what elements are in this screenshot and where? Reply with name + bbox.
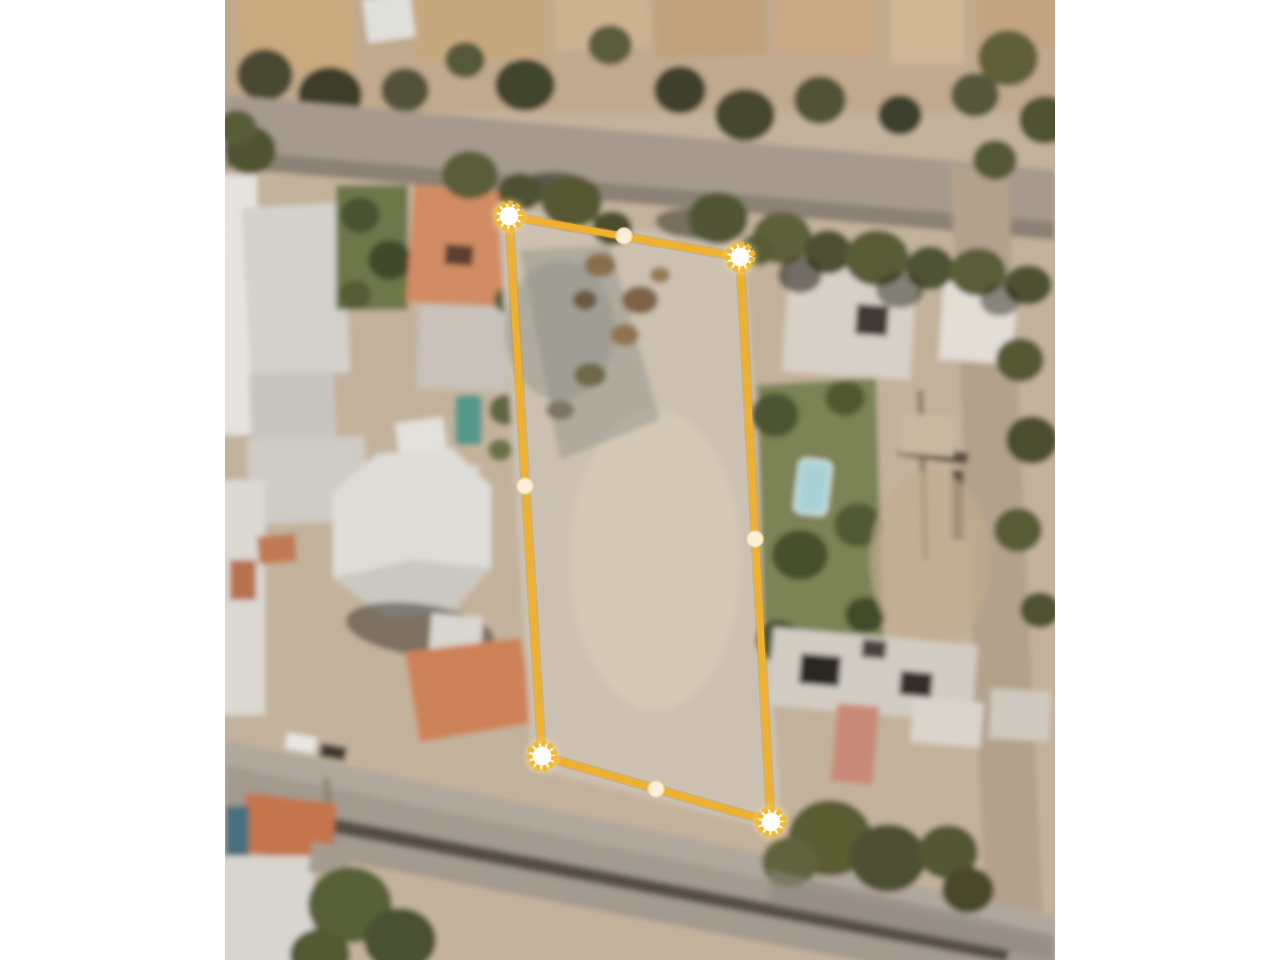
pool-left — [455, 395, 482, 445]
shed — [899, 413, 957, 457]
midpoint-handle-e[interactable] — [747, 531, 763, 547]
tree — [588, 25, 632, 65]
tree — [237, 49, 293, 101]
tree — [495, 59, 555, 111]
tree — [942, 867, 994, 913]
tree — [751, 393, 799, 437]
tree — [688, 192, 748, 244]
debris — [574, 363, 606, 387]
map-canvas[interactable] — [0, 0, 1280, 960]
roof-terracotta-small — [257, 533, 297, 564]
tree — [368, 240, 412, 280]
tree-shadow — [778, 257, 822, 293]
dirt-streak — [870, 470, 990, 650]
screenshot-stage — [0, 0, 1280, 960]
tree — [1006, 416, 1058, 464]
debris — [650, 267, 670, 283]
tree — [217, 110, 257, 146]
tree — [488, 439, 512, 461]
tree-shadow — [876, 272, 924, 308]
tree — [340, 197, 380, 233]
debris — [622, 286, 658, 314]
building-top — [654, 0, 766, 58]
midpoint-handle-w[interactable] — [517, 478, 533, 494]
tree — [825, 380, 865, 416]
roof-hole — [861, 639, 886, 659]
tree — [654, 66, 706, 114]
building-top — [774, 0, 877, 57]
tree — [994, 508, 1042, 552]
blue-tarp — [225, 806, 249, 856]
tree — [442, 151, 498, 199]
pool-right — [794, 458, 832, 515]
vertex-handle-se-core — [763, 814, 780, 831]
building-top — [890, 0, 965, 64]
roof-vent-dark — [444, 244, 473, 266]
tree — [850, 824, 926, 892]
building-white-se — [910, 697, 984, 748]
debris — [611, 324, 639, 346]
tree — [715, 89, 775, 141]
debris — [573, 290, 597, 310]
roof-hole — [799, 653, 841, 686]
building-gray-complex — [249, 371, 337, 449]
tree — [878, 95, 922, 135]
building-gray-mid — [417, 303, 510, 391]
midpoint-handle-n[interactable] — [616, 228, 632, 244]
parcel-dirt-light — [570, 410, 740, 710]
tree — [978, 30, 1038, 86]
tree — [794, 76, 846, 124]
roof-hole — [899, 671, 933, 698]
tree — [1019, 96, 1071, 144]
roof-terracotta-small — [230, 560, 256, 600]
satellite-imagery — [215, 0, 1071, 960]
vertex-handle-nw-core — [501, 208, 518, 225]
building-pink-roof — [831, 703, 880, 784]
building-gray-complex — [242, 202, 351, 377]
tree — [445, 42, 485, 78]
tree — [339, 280, 371, 310]
debris — [584, 253, 616, 277]
vertex-handle-ne-core — [732, 249, 749, 266]
tree-shadow — [980, 284, 1020, 316]
tree — [381, 68, 429, 112]
roof-dark-mark — [855, 304, 889, 336]
tree — [973, 140, 1017, 180]
debris — [546, 400, 574, 420]
midpoint-handle-s[interactable] — [648, 781, 664, 797]
tree — [996, 338, 1044, 382]
car-white — [362, 0, 416, 43]
building-white-se — [989, 688, 1052, 741]
tree — [772, 530, 828, 580]
tree — [1020, 592, 1060, 628]
vertex-handle-sw-core — [534, 748, 551, 765]
